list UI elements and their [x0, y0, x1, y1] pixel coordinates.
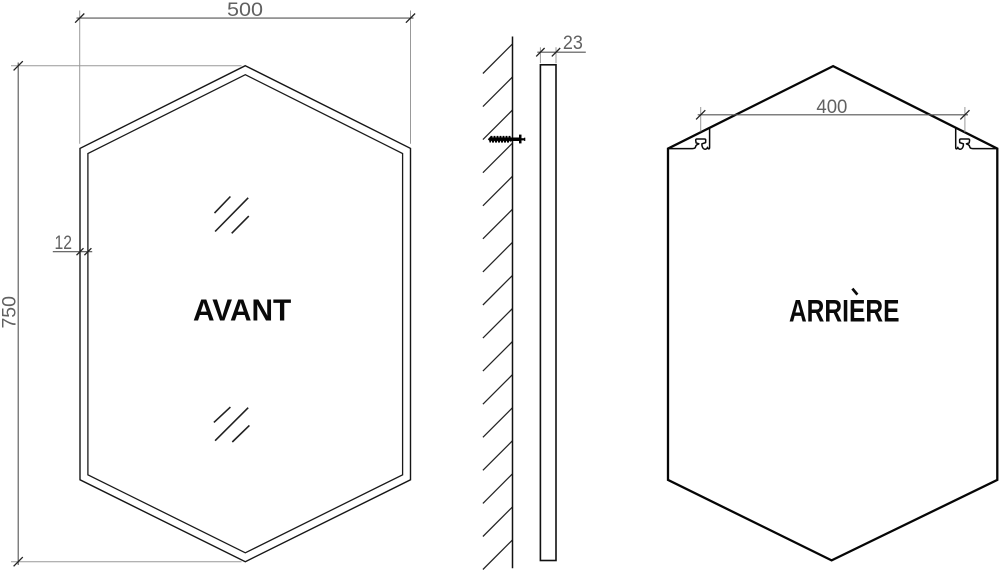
- svg-text:23: 23: [563, 32, 583, 54]
- svg-text:12: 12: [55, 232, 73, 254]
- svg-text:AVANT: AVANT: [193, 293, 292, 327]
- svg-text:750: 750: [0, 296, 21, 329]
- svg-text:ARRIERE: ARRIERE: [789, 293, 900, 329]
- svg-text:500: 500: [227, 0, 263, 21]
- svg-text:400: 400: [816, 96, 847, 118]
